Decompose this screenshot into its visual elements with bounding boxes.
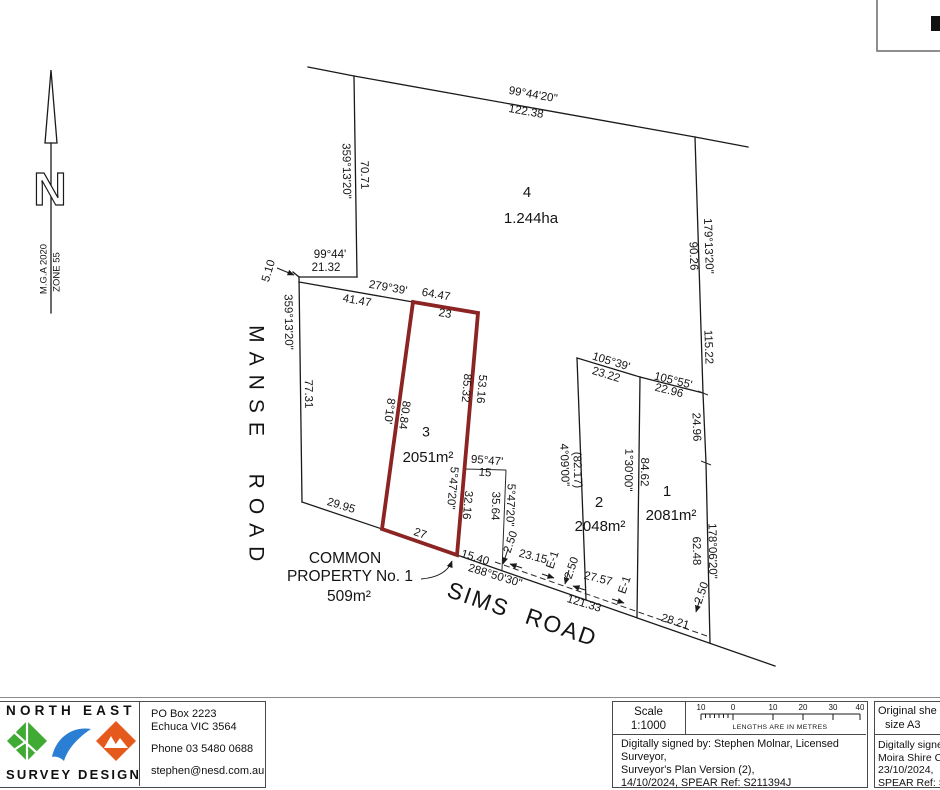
distance-64-47: 64.47 bbox=[421, 287, 451, 304]
logo-green-icon bbox=[7, 721, 47, 761]
bearing-jog: 99°44' bbox=[314, 249, 346, 261]
lot3-number: 3 bbox=[422, 424, 430, 440]
boundary-lot1-lot2-line bbox=[637, 377, 640, 617]
scale-bar-number: 10 bbox=[769, 703, 778, 712]
easement-b-label: E-1 bbox=[616, 575, 633, 596]
lot1-area: 2081m² bbox=[646, 507, 697, 524]
easement-a-extent-arrow-right bbox=[542, 574, 554, 578]
logo-orange-icon bbox=[96, 721, 136, 761]
easement-b-offset: 2.50 bbox=[563, 555, 582, 580]
council-signature-line-3: 23/10/2024, bbox=[878, 764, 938, 777]
distance-115-22: 115.22 bbox=[701, 330, 714, 365]
plan-drawing: 99°44'20"122.38359°13'20"70.7141.244ha99… bbox=[0, 0, 940, 697]
lot2-area: 2048m² bbox=[575, 518, 626, 535]
scale-bar-number: 20 bbox=[799, 703, 808, 712]
bearing-lot3-east: 5°47'20" bbox=[444, 466, 460, 510]
distance-28-21: 28.21 bbox=[659, 612, 690, 632]
sheet-box-divider bbox=[874, 734, 940, 735]
splay-dimension-arrow bbox=[277, 268, 294, 275]
easement-a-length: 23.15 bbox=[518, 548, 549, 567]
company-name-bottom: SURVEY DESIGN bbox=[6, 767, 138, 782]
distance-lot1-west: 84.62 bbox=[638, 458, 651, 487]
distance-north-boundary: 122.38 bbox=[508, 103, 545, 121]
common-property-area: 509m² bbox=[327, 588, 371, 605]
logo-blue-icon bbox=[52, 729, 91, 761]
lot4-area: 1.244ha bbox=[504, 210, 559, 227]
north-zone: ZONE 55 bbox=[52, 252, 63, 292]
scale-cell-divider bbox=[685, 701, 686, 734]
boundary-manse-road-line bbox=[299, 277, 302, 502]
lot3-area: 2051m² bbox=[403, 449, 454, 466]
manse-road-name-1: MANSE bbox=[244, 325, 267, 445]
distance-35-64: 35.64 bbox=[488, 491, 501, 521]
clipped-text-fragment bbox=[931, 16, 940, 31]
distance-90-26: 90.26 bbox=[686, 241, 699, 270]
bearing-lot3-west: 8°10' bbox=[381, 397, 396, 424]
distance-manse-frontage: 77.31 bbox=[302, 380, 315, 409]
easement-b-length: 27.57 bbox=[583, 570, 614, 589]
bearing-lot1-west: 1°30'00" bbox=[622, 448, 635, 491]
scale-bar-ruler bbox=[701, 714, 860, 720]
lot4-number: 4 bbox=[523, 184, 531, 201]
company-logo bbox=[6, 719, 138, 765]
bearing-lot2-west: 4°09'00" bbox=[557, 443, 570, 486]
north-datum: M.G.A 2020 bbox=[39, 244, 50, 294]
north-arrow-head bbox=[45, 70, 57, 143]
distance-lot2-west: (82.17) bbox=[570, 452, 583, 489]
bearing-lot4-west: 359°13'20" bbox=[339, 143, 352, 199]
distance-29-95: 29.95 bbox=[325, 496, 356, 516]
company-email: stephen@nesd.com.au bbox=[151, 765, 264, 778]
scale-bar-number: 10 bbox=[697, 703, 706, 712]
distance-jog: 21.32 bbox=[312, 262, 341, 274]
footer-separator-line bbox=[0, 697, 940, 698]
scale-ratio: 1:1000 bbox=[612, 719, 685, 733]
easement-b-extent-arrow-right bbox=[612, 599, 624, 603]
easement-a-extent-arrow-left bbox=[510, 564, 522, 568]
survey-plan-page: { "colors": { "lot_highlight": "#8b2423"… bbox=[0, 0, 940, 788]
north-letter: N bbox=[33, 163, 66, 215]
distance-15: 15 bbox=[478, 466, 492, 479]
company-address-1: PO Box 2223 bbox=[151, 708, 264, 721]
company-phone: Phone 03 5480 0688 bbox=[151, 743, 264, 756]
common-property-line-2: PROPERTY No. 1 bbox=[287, 568, 413, 585]
common-property-arrow bbox=[421, 561, 452, 579]
sheet-size-line-1: Original she bbox=[878, 705, 938, 719]
scale-signature-divider bbox=[612, 734, 866, 735]
distance-32-16: 32.16 bbox=[460, 490, 474, 520]
bearing-lot1-east: 178°06'20" bbox=[705, 523, 718, 579]
distance-41-47: 41.47 bbox=[342, 293, 372, 310]
sheet-size-line-2: size A3 bbox=[878, 719, 938, 733]
distance-splay: 5.10 bbox=[260, 259, 278, 284]
distance-85-32: 85.32 bbox=[459, 373, 473, 403]
easement-a-offset: 2.50 bbox=[502, 529, 521, 554]
scale-bar-caption: LENGTHS ARE IN METRES bbox=[733, 724, 828, 731]
scale-cell: Scale 1:1000 bbox=[612, 705, 685, 733]
top-right-title-box bbox=[877, 0, 940, 51]
manse-road-name-2: ROAD bbox=[244, 474, 267, 571]
lot1-number: 1 bbox=[663, 483, 671, 500]
surveyor-signature-line-2: Surveyor's Plan Version (2), bbox=[621, 764, 853, 777]
bearing-east-boundary: 179°13'20" bbox=[701, 218, 715, 274]
distance-23: 23 bbox=[438, 307, 453, 321]
surveyor-signature: Digitally signed by: Stephen Molnar, Lic… bbox=[621, 738, 853, 790]
distance-lot4-west: 70.71 bbox=[358, 161, 371, 190]
common-property-line-1: COMMON bbox=[309, 550, 381, 567]
surveyor-signature-line-1: Digitally signed by: Stephen Molnar, Lic… bbox=[621, 738, 853, 764]
scale-bar-number: 30 bbox=[829, 703, 838, 712]
lot2-number: 2 bbox=[595, 494, 603, 511]
surveyor-signature-line-3: 14/10/2024, SPEAR Ref: S211394J bbox=[621, 777, 853, 790]
company-name-top: NORTH EAST bbox=[6, 703, 138, 718]
council-signature-line-4: SPEAR Ref: S2 bbox=[878, 777, 938, 790]
plan-labels: 99°44'20"122.38359°13'20"70.7141.244ha99… bbox=[33, 85, 718, 652]
easement-a-label: E-1 bbox=[544, 550, 561, 571]
distance-121-33: 121.33 bbox=[565, 593, 602, 615]
bearing-5-47-20: 5°47'20" bbox=[503, 483, 516, 526]
sheet-size-cell: Original she size A3 bbox=[878, 705, 938, 732]
company-address-2: Echuca VIC 3564 bbox=[151, 721, 264, 734]
council-signature-line-1: Digitally signed bbox=[878, 739, 938, 752]
distance-24-96: 24.96 bbox=[689, 412, 702, 441]
scale-bar-number: 40 bbox=[856, 703, 864, 712]
council-signature: Digitally signed Moira Shire Co 23/10/20… bbox=[878, 739, 938, 789]
scale-bar: 10 0 10 20 30 40 LENGTHS ARE IN METRES bbox=[688, 702, 864, 732]
bearing-manse-frontage: 359°13'20" bbox=[281, 294, 294, 350]
easement-b-extent-arrow-left bbox=[573, 586, 585, 590]
distance-lot1-east: 62.48 bbox=[690, 537, 703, 566]
scale-label: Scale bbox=[612, 705, 685, 719]
council-signature-line-2: Moira Shire Co bbox=[878, 752, 938, 765]
bearing-north-boundary: 99°44'20" bbox=[508, 85, 559, 105]
scale-bar-number: 0 bbox=[731, 703, 736, 712]
boundary-lot4-west-line bbox=[354, 76, 357, 277]
company-contact: PO Box 2223 Echuca VIC 3564 Phone 03 548… bbox=[151, 708, 264, 778]
distance-53-16: 53.16 bbox=[474, 374, 488, 404]
